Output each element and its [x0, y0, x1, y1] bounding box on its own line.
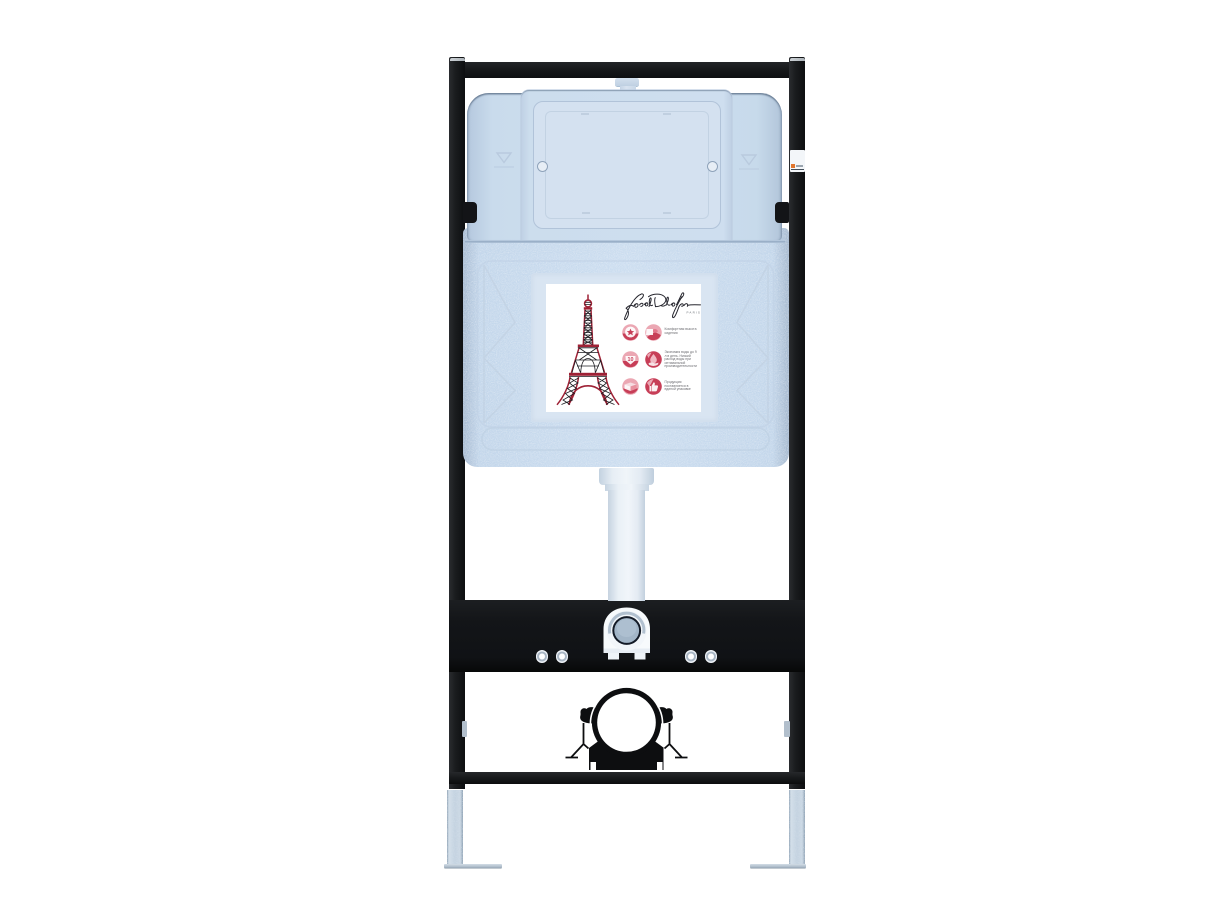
- svg-text:PARIS: PARIS: [687, 311, 702, 315]
- svg-text:10: 10: [627, 357, 633, 363]
